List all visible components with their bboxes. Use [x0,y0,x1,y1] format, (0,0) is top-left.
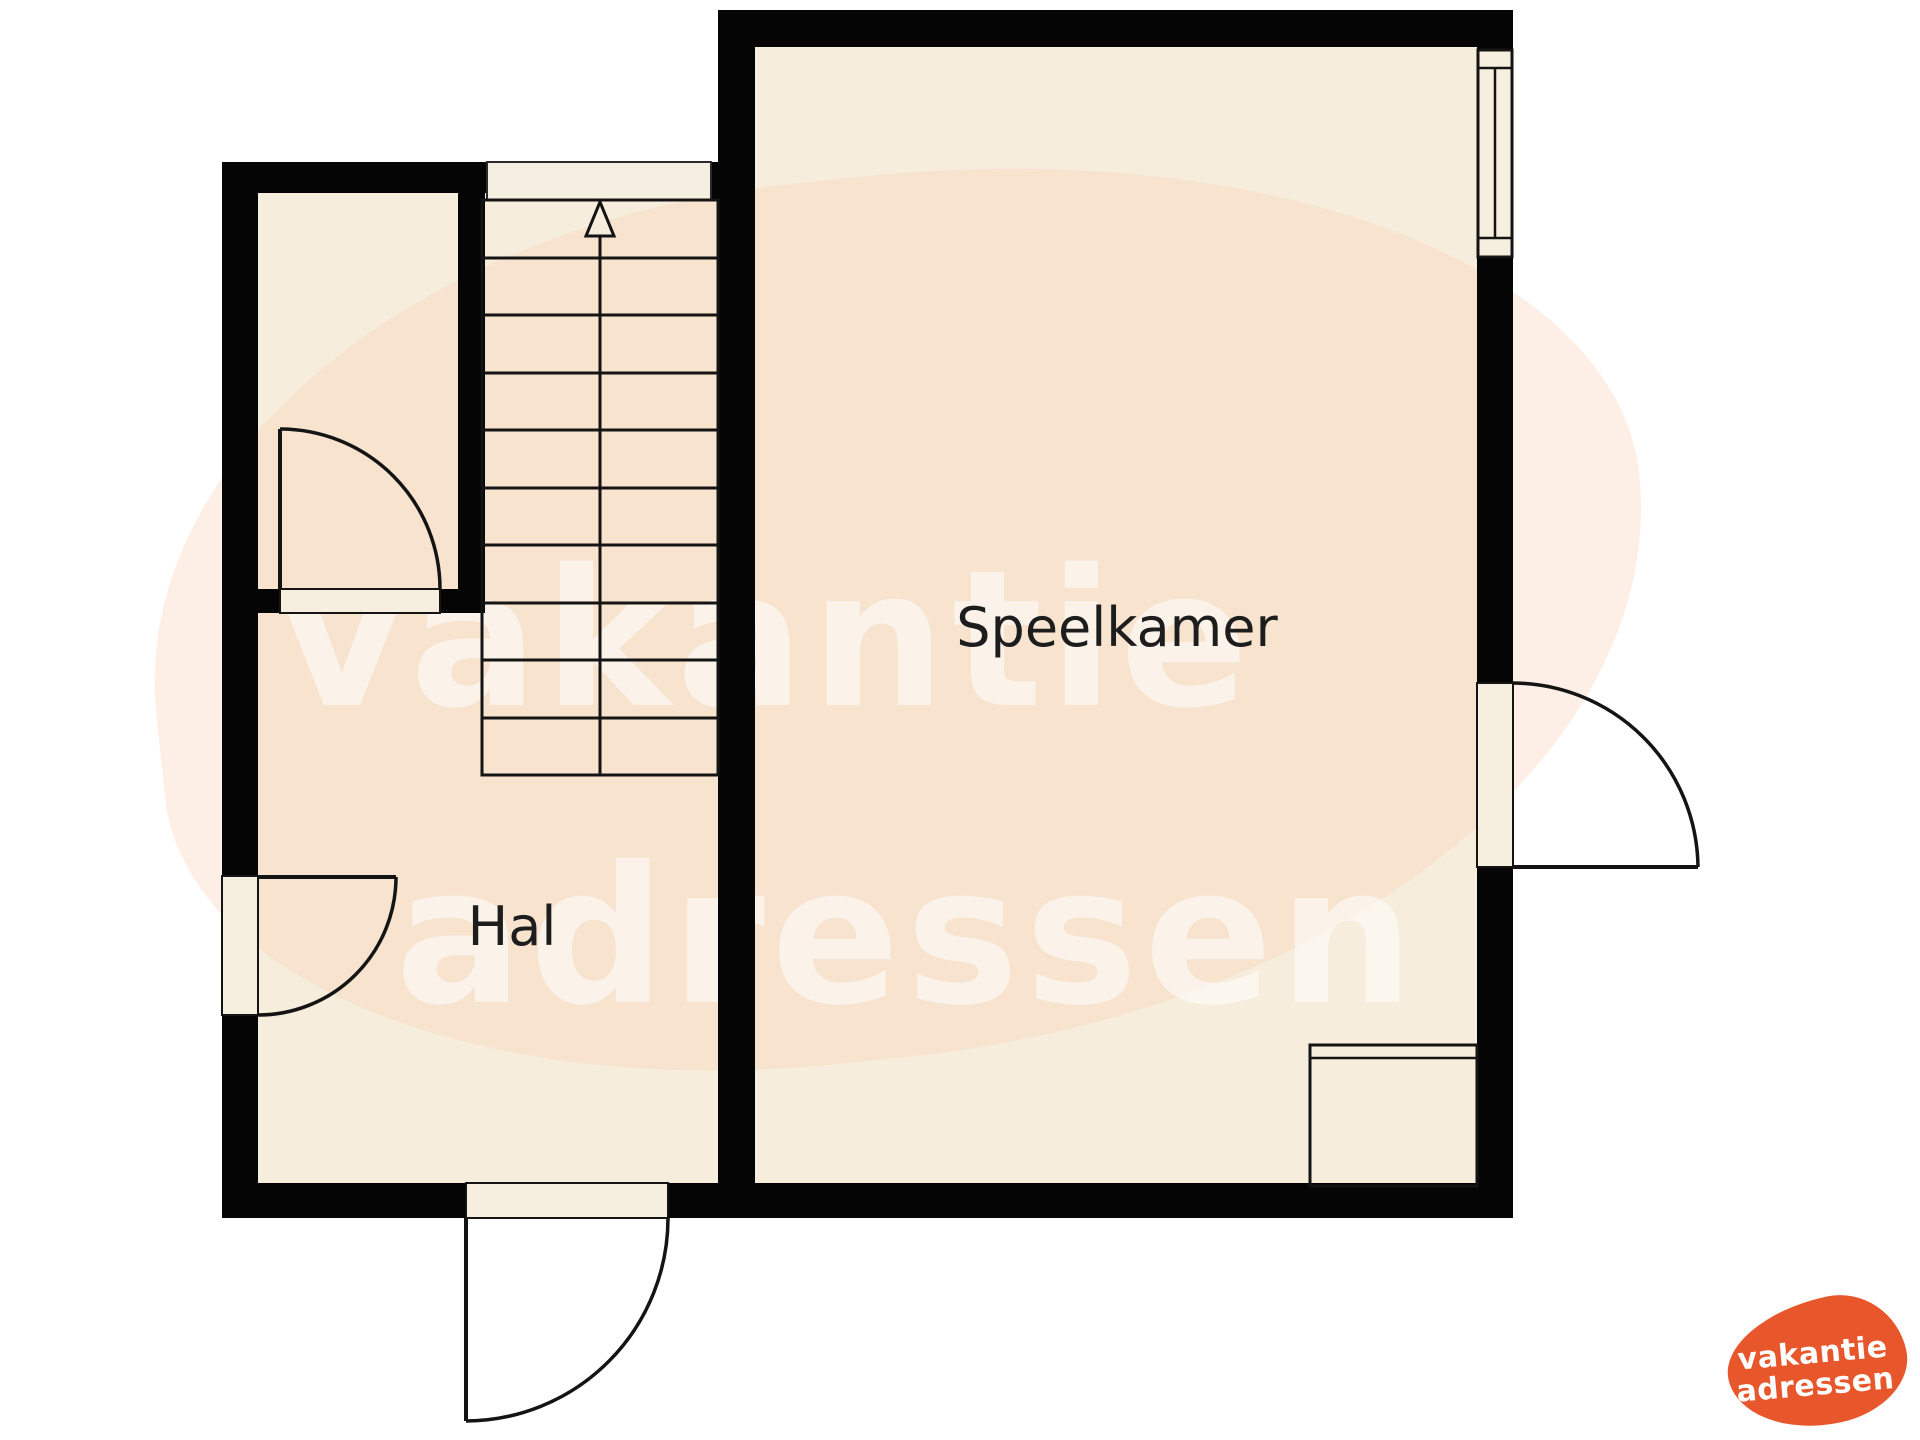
door-left-swing-arc [258,877,396,1015]
door-right-swing-arc [1512,683,1698,867]
logo-text: vakantie adressen [1730,1331,1899,1408]
cabinet-nook [1310,1045,1477,1186]
door-right-opening [1477,683,1513,867]
room-label-speelkamer: Speelkamer [917,601,1317,655]
door-right [1477,683,1698,867]
door-closet-swing-arc [280,429,440,589]
door-left-opening [222,876,258,1015]
window-right [1478,50,1512,257]
cabinet-outline [1310,1045,1477,1186]
room-label-hal: Hal [412,900,612,954]
floorplan-canvas: vakantie adressen [0,0,1920,1440]
door-left [222,876,396,1015]
floorplan-linework [0,0,1920,1440]
stairs-up-arrow-icon [586,202,614,236]
door-closet [280,429,440,613]
staircase [482,162,718,775]
door-bottom [466,1183,668,1421]
door-bottom-swing-arc [466,1218,668,1421]
stair-landing [487,162,711,200]
door-bottom-opening [466,1183,668,1218]
door-closet-opening [280,589,440,613]
